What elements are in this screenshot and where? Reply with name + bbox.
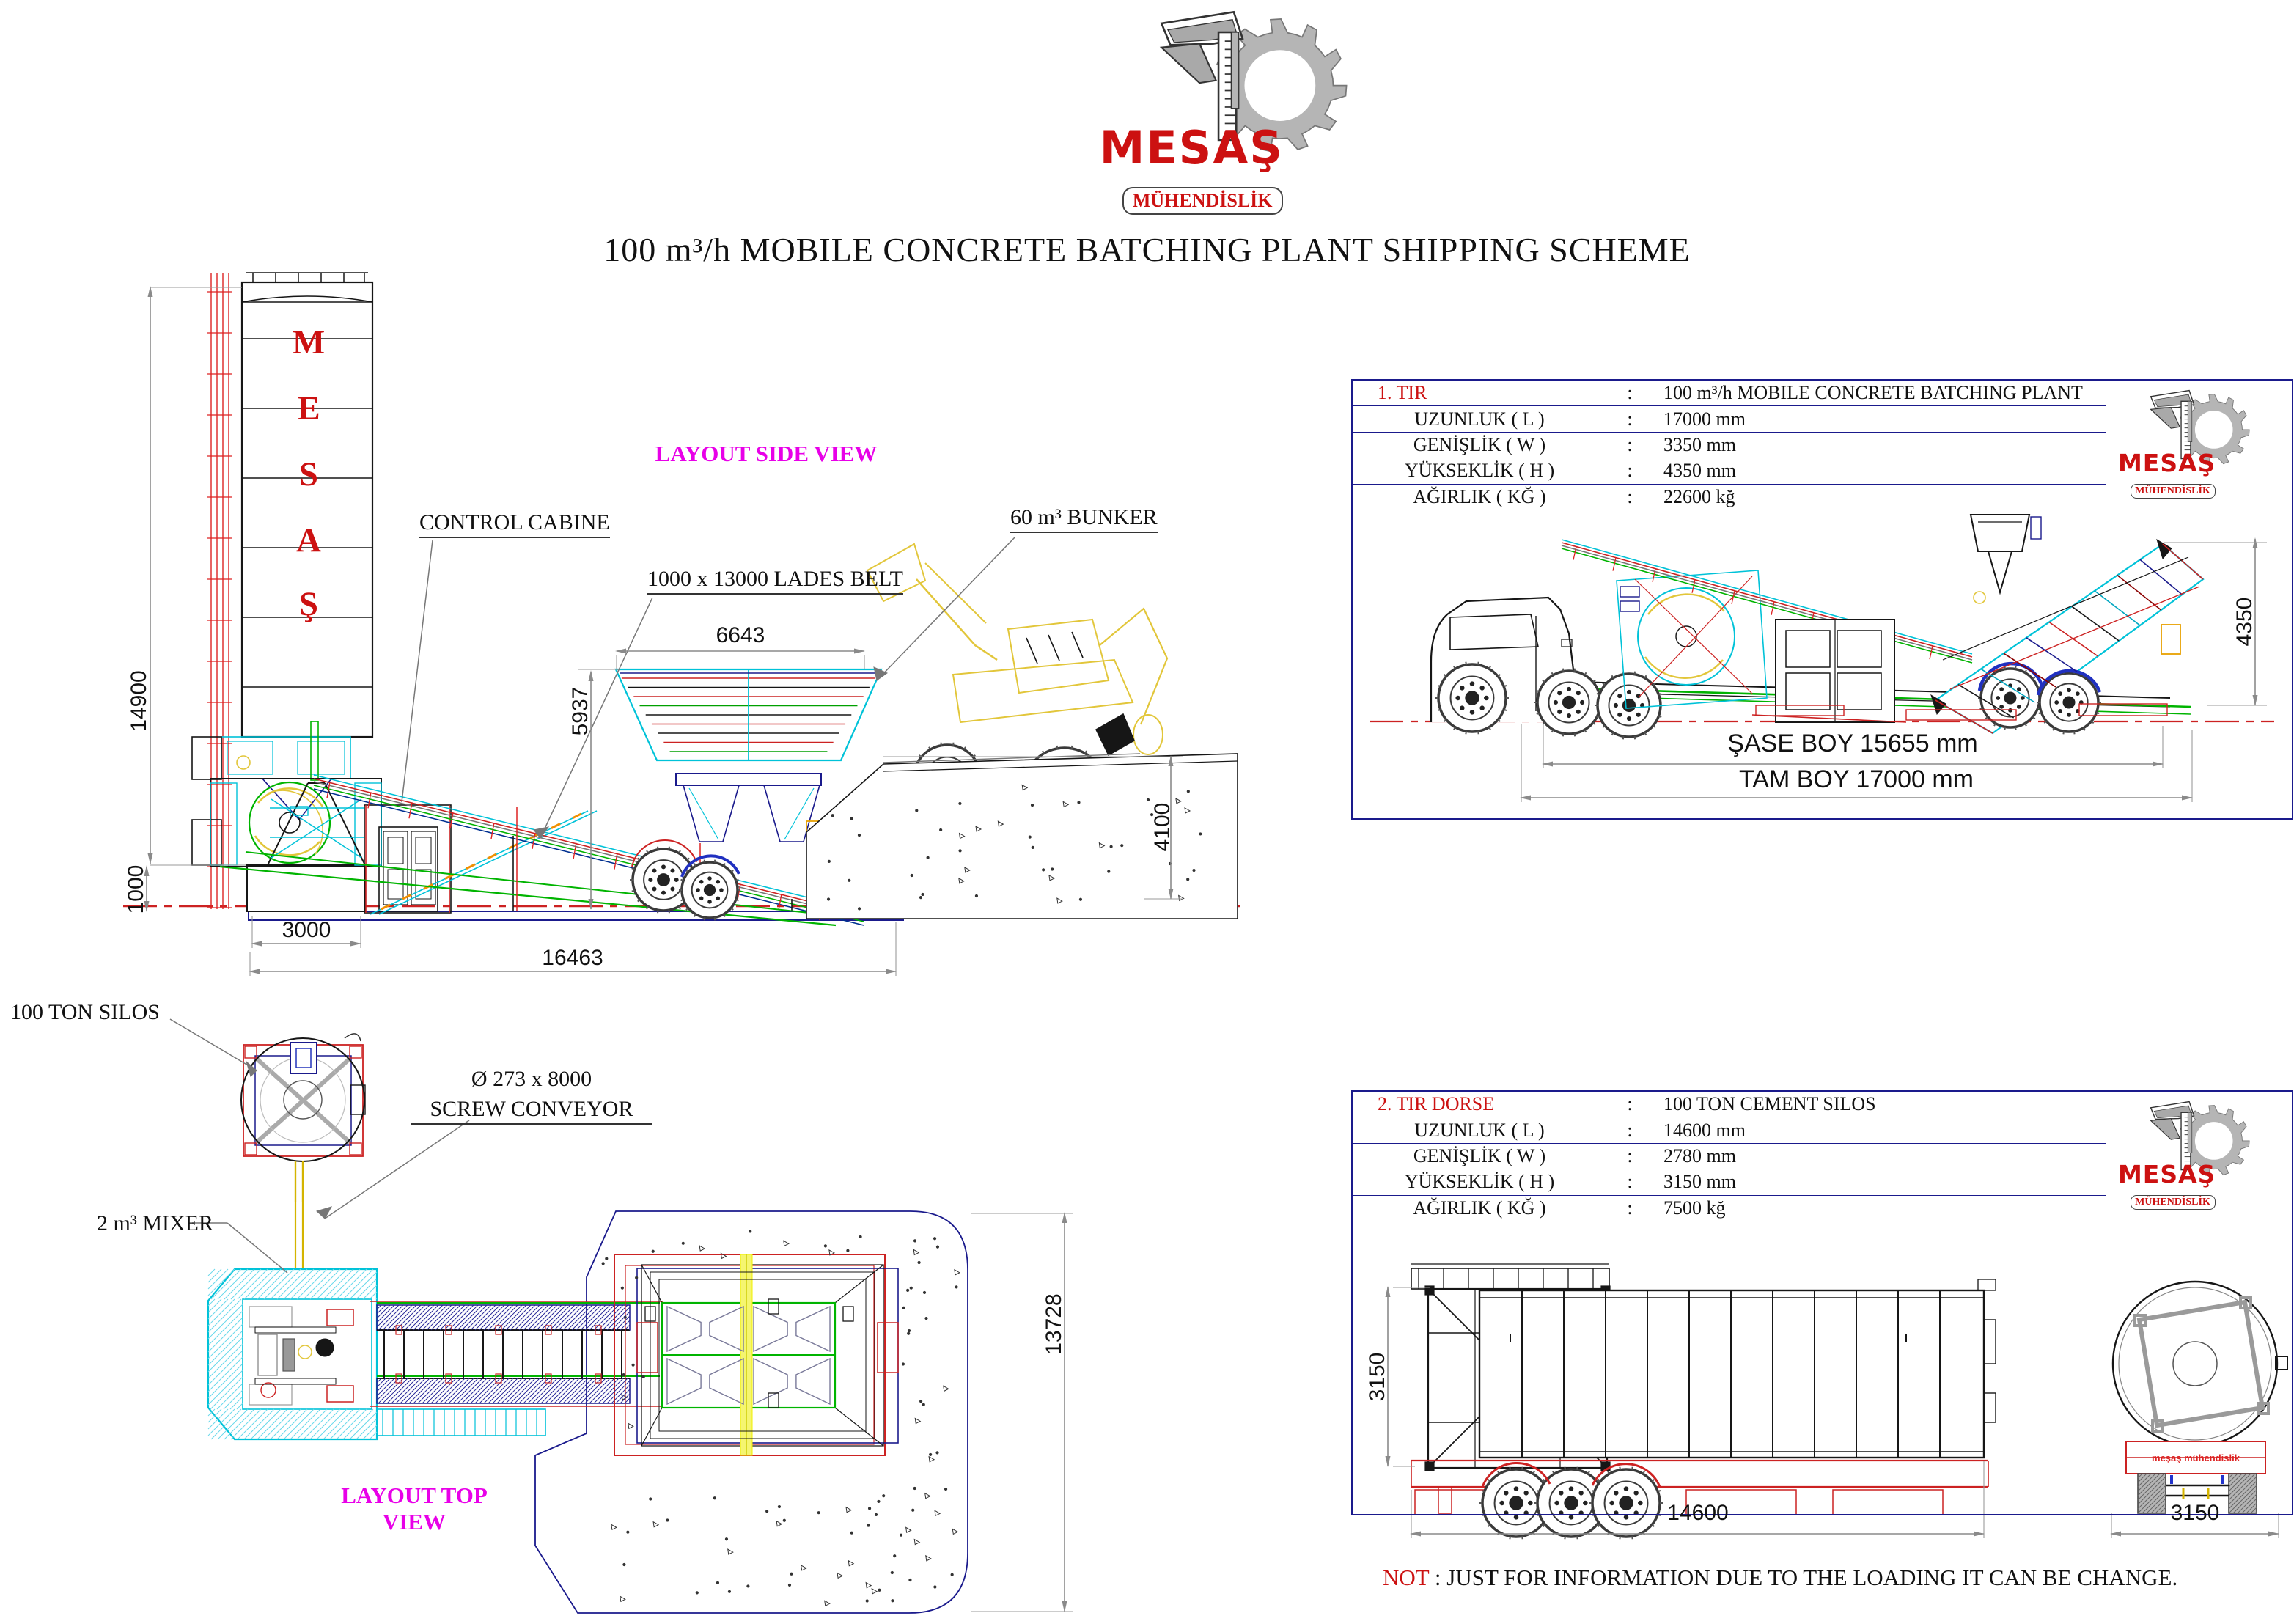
company-logo: MESAŞ MÜHENDİSLİK bbox=[1094, 4, 1409, 224]
silo-letter: E bbox=[289, 389, 328, 428]
row-value: 14600 mm bbox=[1653, 1117, 2106, 1143]
row-value: 100 m³/h MOBILE CONCRETE BATCHING PLANT bbox=[1653, 381, 2106, 406]
dim-total-length: 16463 bbox=[514, 946, 631, 971]
logo-subtitle: MÜHENDİSLİK bbox=[2131, 1195, 2216, 1210]
callout-screw-name: SCREW CONVEYOR bbox=[411, 1097, 652, 1125]
logo-name: MESAŞ bbox=[2115, 1160, 2218, 1188]
footer-note: NOT : JUST FOR INFORMATION DUE TO THE LO… bbox=[1383, 1565, 2177, 1591]
dim-plant-width: 13728 bbox=[1042, 1265, 1067, 1383]
row-colon: : bbox=[1606, 1169, 1653, 1195]
callout-mixer: 2 m³ MIXER bbox=[97, 1211, 213, 1236]
dim-base-height: 1000 bbox=[124, 845, 149, 933]
row-colon: : bbox=[1606, 458, 1653, 484]
logo-subtitle: MÜHENDİSLİK bbox=[2131, 484, 2216, 499]
dim-silo-height: 3150 bbox=[1365, 1318, 1390, 1436]
row-colon: : bbox=[1606, 1144, 1653, 1169]
row-colon: : bbox=[1606, 1117, 1653, 1143]
row-value: 3150 mm bbox=[1653, 1169, 2106, 1195]
row-colon: : bbox=[1606, 1092, 1653, 1117]
shipping-scheme-sheet: MESAŞ MÜHENDİSLİK 100 m³/h MOBILE CONCRE… bbox=[0, 0, 2294, 1624]
row-colon: : bbox=[1606, 433, 1653, 458]
logo-name: MESAŞ bbox=[2115, 449, 2218, 477]
row-label: GENİŞLİK ( W ) bbox=[1353, 1144, 1606, 1169]
side-view-label: LAYOUT SIDE VIEW bbox=[652, 441, 880, 467]
trailer-brand-label: meşaş mühendislik bbox=[2131, 1452, 2261, 1463]
callout-lades-belt: 1000 x 13000 LADES BELT bbox=[647, 567, 903, 595]
row-colon: : bbox=[1606, 406, 1653, 432]
row-label: UZUNLUK ( L ) bbox=[1353, 1117, 1606, 1143]
row-label: 2. TIR DORSE bbox=[1353, 1092, 1606, 1117]
panel-tir2: 2. TIR DORSE : 100 TON CEMENT SILOS UZUN… bbox=[1351, 1090, 2293, 1515]
row-value: 4350 mm bbox=[1653, 458, 2106, 484]
silo-letter: S bbox=[289, 455, 328, 494]
dim-footing: 3000 bbox=[262, 918, 350, 943]
logo-subtitle: MÜHENDİSLİK bbox=[1122, 187, 1283, 215]
row-label: YÜKSEKLİK ( H ) bbox=[1353, 458, 1606, 484]
note-label: NOT bbox=[1383, 1565, 1429, 1590]
row-colon: : bbox=[1606, 485, 1653, 510]
logo-name: MESAŞ bbox=[1094, 121, 1290, 174]
silo-letter: M bbox=[289, 323, 328, 362]
row-label: AĞIRLIK ( KĞ ) bbox=[1353, 485, 1606, 510]
callout-screw-size: Ø 273 x 8000 bbox=[440, 1067, 623, 1092]
tir1-spec-table: 1. TIR : 100 m³/h MOBILE CONCRETE BATCHI… bbox=[1353, 381, 2292, 510]
row-value: 3350 mm bbox=[1653, 433, 2106, 458]
tir2-logo-cell: MESAŞ MÜHENDİSLİK bbox=[2106, 1092, 2290, 1221]
dim-ramp-height: 4100 bbox=[1150, 768, 1175, 886]
dim-truck-height: 4350 bbox=[2232, 563, 2257, 680]
row-value: 17000 mm bbox=[1653, 406, 2106, 432]
callout-control-cabine: CONTROL CABINE bbox=[419, 510, 610, 538]
row-label: AĞIRLIK ( KĞ ) bbox=[1353, 1196, 1606, 1221]
dim-silo-length: 14600 bbox=[1639, 1501, 1757, 1526]
tir2-spec-table: 2. TIR DORSE : 100 TON CEMENT SILOS UZUN… bbox=[1353, 1092, 2292, 1221]
row-colon: : bbox=[1606, 381, 1653, 406]
company-logo-mini: MESAŞ MÜHENDİSLİK bbox=[2115, 386, 2282, 504]
row-label: 1. TIR bbox=[1353, 381, 1606, 406]
dim-bunker-width: 6643 bbox=[689, 623, 792, 648]
company-logo-mini: MESAŞ MÜHENDİSLİK bbox=[2115, 1098, 2282, 1215]
row-colon: : bbox=[1606, 1196, 1653, 1221]
silo-letter: A bbox=[289, 521, 328, 560]
callout-silos: 100 TON SILOS bbox=[10, 1000, 160, 1025]
callout-bunker: 60 m³ BUNKER bbox=[1010, 505, 1158, 533]
dim-sase-boy: ŞASE BOY 15655 mm bbox=[1691, 730, 2014, 758]
row-value: 100 TON CEMENT SILOS bbox=[1653, 1092, 2106, 1117]
note-text: : JUST FOR INFORMATION DUE TO THE LOADIN… bbox=[1429, 1565, 2177, 1590]
row-label: UZUNLUK ( L ) bbox=[1353, 406, 1606, 432]
row-value: 7500 kğ bbox=[1653, 1196, 2106, 1221]
silo-letter: Ş bbox=[289, 584, 328, 624]
dim-silo-width: 3150 bbox=[2136, 1501, 2254, 1526]
dim-tam-boy: TAM BOY 17000 mm bbox=[1695, 765, 2018, 794]
row-value: 2780 mm bbox=[1653, 1144, 2106, 1169]
tir1-logo-cell: MESAŞ MÜHENDİSLİK bbox=[2106, 381, 2290, 510]
row-label: GENİŞLİK ( W ) bbox=[1353, 433, 1606, 458]
sheet-title: 100 m³/h MOBILE CONCRETE BATCHING PLANT … bbox=[0, 230, 2294, 269]
dim-total-height: 14900 bbox=[127, 642, 152, 760]
dim-bunker-height: 5937 bbox=[568, 653, 593, 770]
row-value: 22600 kğ bbox=[1653, 485, 2106, 510]
row-label: YÜKSEKLİK ( H ) bbox=[1353, 1169, 1606, 1195]
top-view-label: LAYOUT TOP VIEW bbox=[308, 1482, 521, 1535]
